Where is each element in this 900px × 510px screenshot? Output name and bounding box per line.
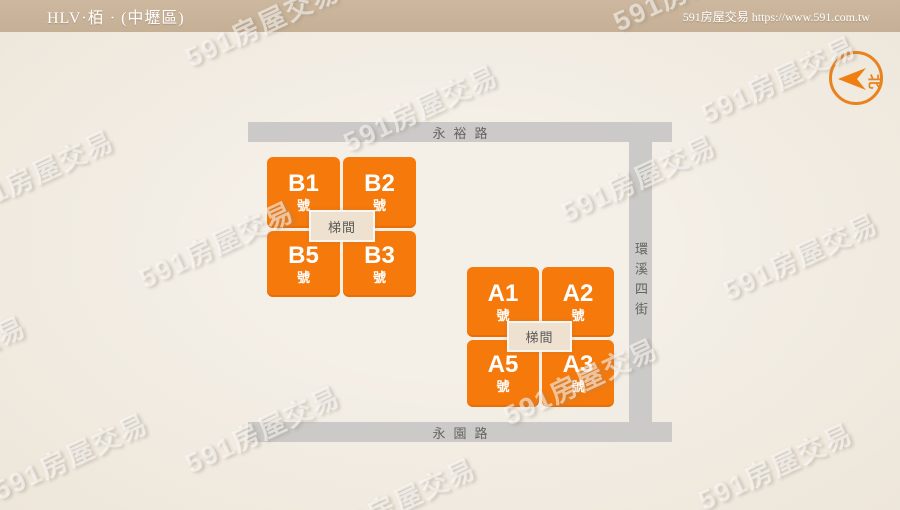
unit-id: A3: [563, 352, 594, 378]
stairwell-a: 梯間: [507, 321, 572, 352]
road-label: 永園路: [424, 423, 495, 442]
north-label: 北: [865, 74, 886, 89]
road-yongyuan-rd: 永園路: [248, 422, 672, 442]
road-huanxi-4th-st: 環溪四街: [629, 122, 652, 442]
stairwell-b: 梯間: [309, 210, 375, 242]
site-plan-map: 環溪四街 永裕路 永園路 B1 號 B2 號 B5 號 B3 號 梯間 A1 號: [0, 32, 900, 510]
unit-suffix: 號: [571, 378, 584, 395]
site-plan-page: HLV·栢 · (中壢區) 591房屋交易 https://www.591.co…: [0, 0, 900, 510]
header-bar: HLV·栢 · (中壢區) 591房屋交易 https://www.591.co…: [0, 0, 900, 32]
unit-id: B1: [288, 171, 319, 197]
site-credit: 591房屋交易 https://www.591.com.tw: [683, 8, 870, 25]
unit-id: A2: [563, 281, 594, 307]
unit-id: A5: [488, 352, 519, 378]
unit-suffix: 號: [496, 378, 509, 395]
unit-id: A1: [488, 281, 519, 307]
road-label: 永裕路: [424, 123, 495, 142]
road-yongyu-rd: 永裕路: [248, 122, 672, 142]
road-label: 環溪四街: [629, 242, 652, 322]
unit-id: B2: [364, 171, 395, 197]
page-title: HLV·栢 · (中壢區): [47, 4, 185, 28]
unit-suffix: 號: [297, 269, 310, 286]
unit-id: B5: [288, 243, 319, 269]
north-arrow-icon: [838, 68, 868, 90]
unit-id: B3: [364, 243, 395, 269]
unit-suffix: 號: [373, 269, 386, 286]
unit-suffix: 號: [571, 307, 584, 324]
compass-north-indicator: 北: [829, 51, 883, 105]
